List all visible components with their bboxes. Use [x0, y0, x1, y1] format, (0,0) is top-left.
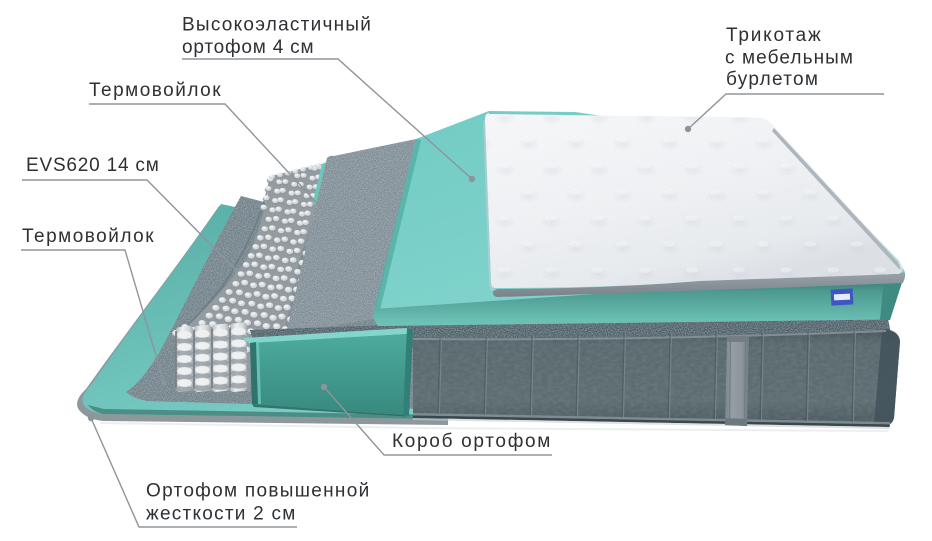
svg-text:Термовойлок: Термовойлок [22, 226, 155, 247]
svg-text:ортофом 4 см: ортофом 4 см [182, 37, 314, 58]
svg-text:EVS620 14 см: EVS620 14 см [26, 155, 160, 176]
svg-text:Термовойлок: Термовойлок [89, 80, 222, 101]
svg-text:Короб ортофом: Короб ортофом [392, 431, 552, 452]
svg-text:жесткости 2 см: жесткости 2 см [146, 504, 297, 525]
svg-text:Трикотаж: Трикотаж [726, 25, 823, 46]
svg-text:Высокоэластичный: Высокоэластичный [182, 15, 372, 36]
svg-text:бурлетом: бурлетом [726, 69, 819, 90]
svg-text:Ортофом повышенной: Ортофом повышенной [146, 481, 371, 502]
svg-text:с мебельным: с мебельным [725, 48, 854, 69]
